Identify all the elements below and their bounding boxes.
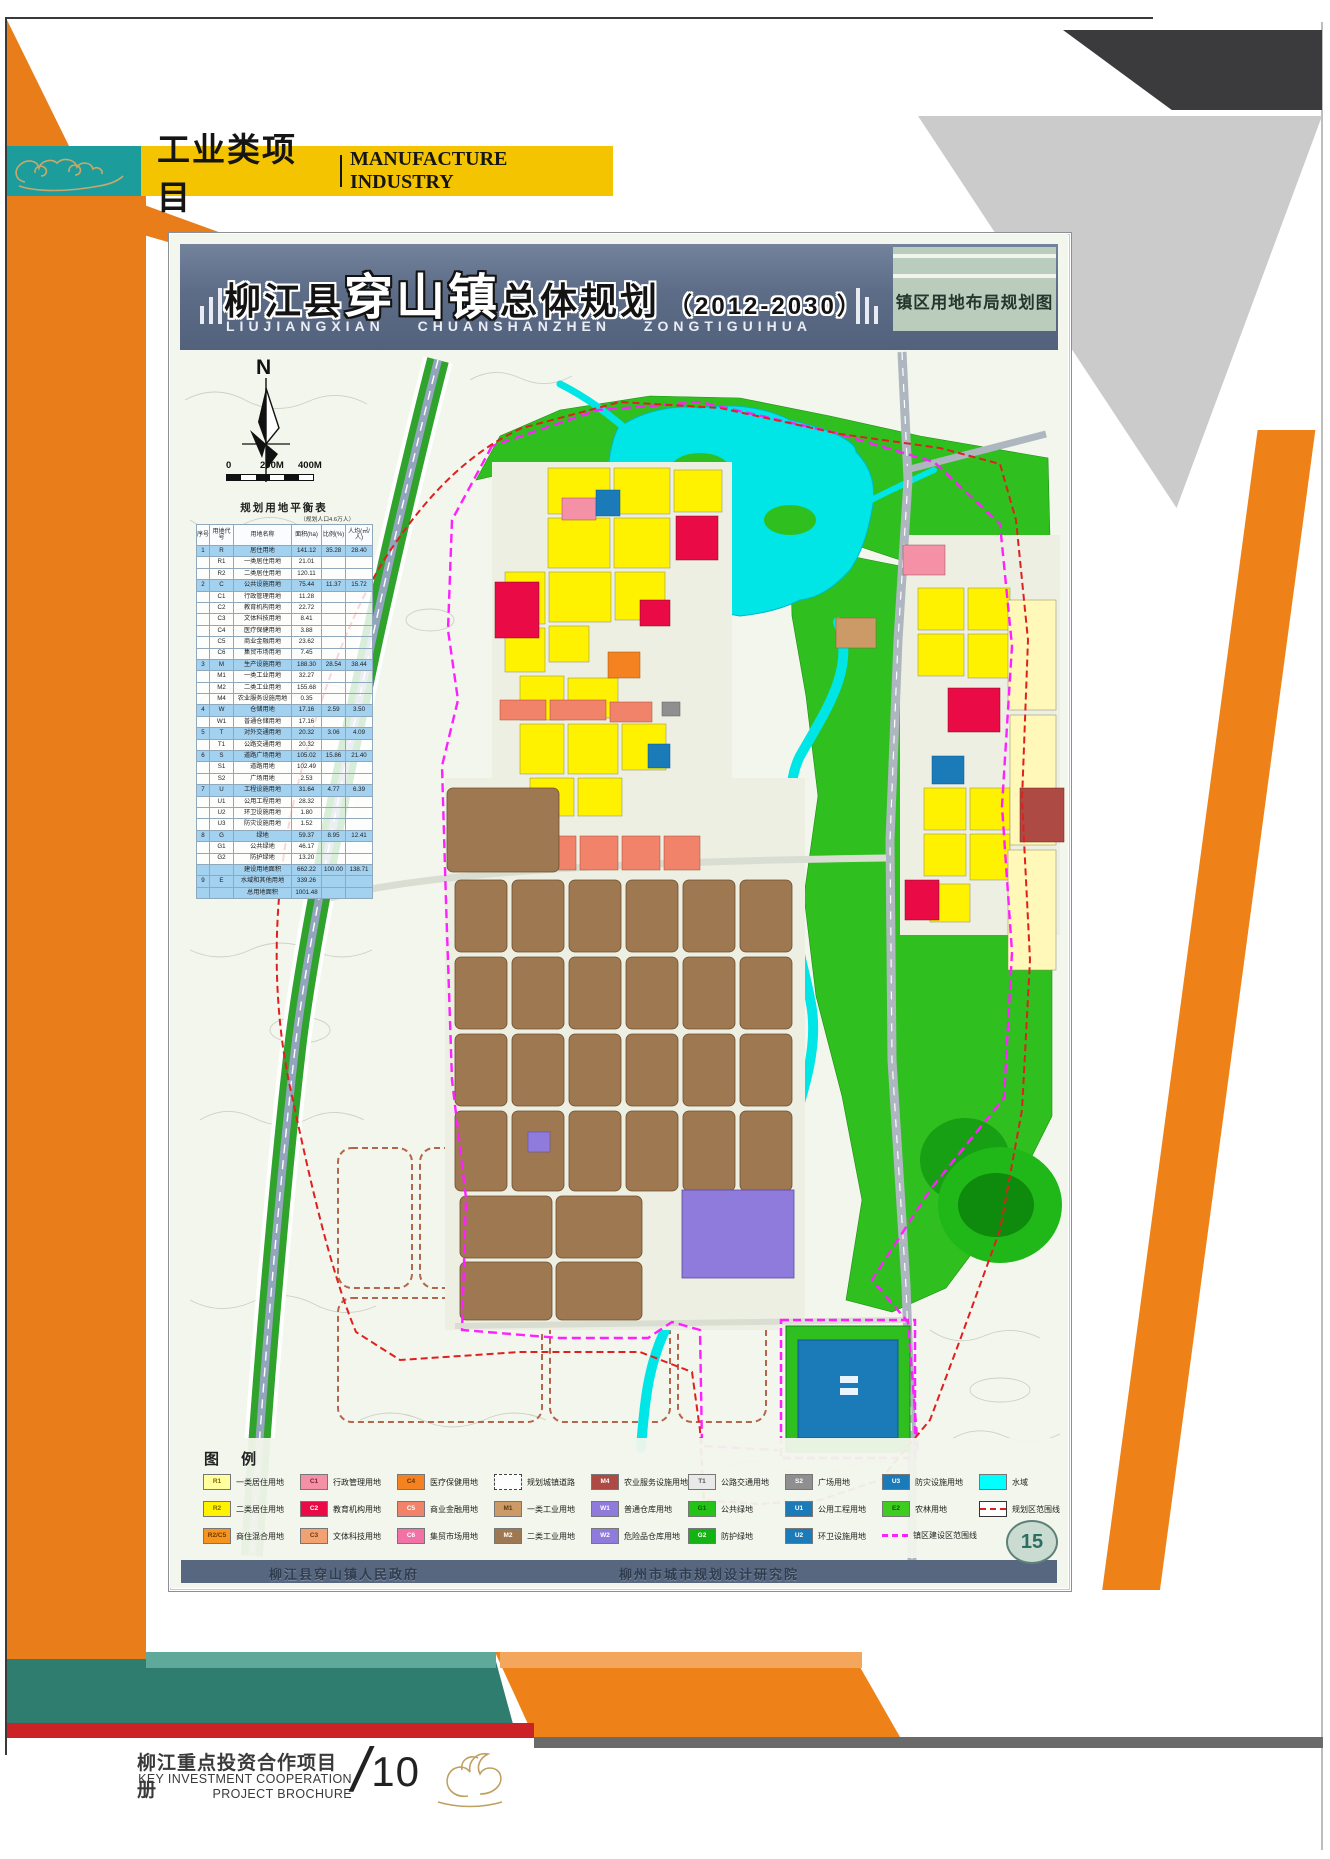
- legend-entry: M2二类工业用地: [494, 1528, 590, 1544]
- brochure-page-number: / 10: [352, 1742, 420, 1802]
- legend-label: 危险品仓库用地: [624, 1531, 680, 1542]
- table-header-cell: 序号: [197, 525, 210, 546]
- table-header-cell: 比例(%): [322, 525, 346, 546]
- table-row: C1行政管理用地11.28: [197, 591, 373, 602]
- legend-entry: W1普通仓库用地: [591, 1501, 687, 1517]
- title-period: （2012-2030）: [668, 286, 864, 321]
- legend-label: 二类工业用地: [527, 1531, 575, 1542]
- legend-entry: M4农业服务设施用地: [591, 1474, 687, 1490]
- north-label: N: [256, 356, 271, 380]
- table-row: 建设用地面积662.22100.00138.71: [197, 864, 373, 875]
- legend-label: 文体科技用地: [333, 1531, 381, 1542]
- page-slash: /: [352, 1742, 369, 1800]
- side-panel-stripe: [893, 254, 1056, 258]
- color-swatch-icon: G2: [688, 1528, 716, 1544]
- balance-table-title: 规划用地平衡表: [214, 500, 354, 515]
- brochure-title-en2: PROJECT BROCHURE: [100, 1787, 352, 1801]
- legend-label: 商住混合用地: [236, 1531, 284, 1542]
- legend-entry: G2防护绿地: [688, 1528, 784, 1544]
- table-row: U3防灾设施用地1.52: [197, 819, 373, 830]
- legend-entry: 规划区范围线: [979, 1501, 1075, 1517]
- legend-label: 环卫设施用地: [818, 1531, 866, 1542]
- brochure-title-en1: KEY INVESTMENT COOPERATION: [100, 1772, 352, 1786]
- color-swatch-icon: U2: [785, 1528, 813, 1544]
- table-row: 4W仓储用地17.162.593.50: [197, 705, 373, 716]
- table-row: M2二类工业用地155.68: [197, 682, 373, 693]
- color-swatch-icon: C5: [397, 1501, 425, 1517]
- side-panel-label: 镇区用地布局规划图: [893, 289, 1056, 313]
- table-row: C3文体科技用地8.41: [197, 614, 373, 625]
- legend-entry: U2环卫设施用地: [785, 1528, 881, 1544]
- table-row: R2二类居住用地120.11: [197, 568, 373, 579]
- legend-label: 教育机构用地: [333, 1504, 381, 1515]
- color-swatch-icon: M1: [494, 1501, 522, 1517]
- balance-table-header: 序号用地代号用地名称面积(ha)比例(%)人均(㎡/人): [197, 525, 373, 546]
- small-warehouse-block: [528, 1132, 550, 1152]
- legend-entry: R2二类居住用地: [203, 1501, 299, 1517]
- table-row: 5T对外交通用地20.323.064.09: [197, 728, 373, 739]
- footer-right-org: 柳州市城市规划设计研究院: [619, 1564, 799, 1583]
- table-row: C6集贸市场用地7.45: [197, 648, 373, 659]
- table-row: T1公路交通用地20.32: [197, 739, 373, 750]
- color-swatch-icon: W1: [591, 1501, 619, 1517]
- color-swatch-icon: R2/C5: [203, 1528, 231, 1544]
- scale-label: 0: [226, 460, 260, 471]
- color-swatch-icon: G1: [688, 1501, 716, 1517]
- title-bars-left-icon: [200, 288, 222, 324]
- color-swatch-icon: C6: [397, 1528, 425, 1544]
- legend-label: 行政管理用地: [333, 1477, 381, 1488]
- scale-label: 400M: [298, 460, 322, 471]
- legend-label: 公共绿地: [721, 1504, 753, 1515]
- table-header-cell: 用地代号: [210, 525, 234, 546]
- banner-divider: [340, 155, 342, 187]
- line-red-swatch-icon: [979, 1501, 1007, 1517]
- legend-label: 公用工程用地: [818, 1504, 866, 1515]
- table-row: G1公共绿地46.17: [197, 842, 373, 853]
- scale-bar-segments: [226, 474, 314, 481]
- title-prefix: 柳江县: [224, 271, 344, 325]
- planning-map: [169, 233, 1069, 1589]
- legend-label: 集贸市场用地: [430, 1531, 478, 1542]
- title-suffix: 总体规划: [500, 271, 660, 325]
- legend-label: 商业金融用地: [430, 1504, 478, 1515]
- legend-entry: U1公用工程用地: [785, 1501, 881, 1517]
- legend-label: 一类工业用地: [527, 1504, 575, 1515]
- table-row: U1公用工程用地28.32: [197, 796, 373, 807]
- legend-label: 农业服务设施用地: [624, 1477, 688, 1488]
- table-row: W1普通仓储用地17.16: [197, 716, 373, 727]
- table-row: M1一类工业用地32.27: [197, 671, 373, 682]
- color-swatch-icon: U1: [785, 1501, 813, 1517]
- legend-entry: R2/C5商住混合用地: [203, 1528, 299, 1544]
- legend-entry: 规划城镇道路: [494, 1474, 590, 1490]
- color-swatch-icon: E2: [882, 1501, 910, 1517]
- legend-entry: C2教育机构用地: [300, 1501, 396, 1517]
- balance-table-note: （规划人口4.6万人）: [300, 514, 354, 523]
- top-rule-line: [5, 17, 1153, 19]
- title-romanized: LIUJIANGXIAN CHUANSHANZHEN ZONGTIGUIHUA: [226, 318, 812, 334]
- map-titlebar: 柳江县 穿山镇 总体规划 （2012-2030） LIUJIANGXIAN CH…: [180, 244, 1058, 350]
- table-row: S1道路用地102.49: [197, 762, 373, 773]
- color-swatch-icon: W2: [591, 1528, 619, 1544]
- table-row: S2广场用地2.53: [197, 773, 373, 784]
- balance-table: 序号用地代号用地名称面积(ha)比例(%)人均(㎡/人) 1R居住用地141.1…: [196, 524, 373, 899]
- legend-entry: C4医疗保健用地: [397, 1474, 493, 1490]
- side-panel-stripe: [893, 274, 1056, 278]
- warehouse-block: [682, 1190, 794, 1278]
- table-row: 9E水域和其他用地339.26: [197, 876, 373, 887]
- table-row: 3M生产设施用地188.3028.5438.44: [197, 659, 373, 670]
- color-swatch-icon: C4: [397, 1474, 425, 1490]
- legend-entry: C3文体科技用地: [300, 1528, 396, 1544]
- legend-entry: C6集贸市场用地: [397, 1528, 493, 1544]
- right-orange-diagonal: [1100, 430, 1322, 1590]
- road-swatch-icon: [494, 1474, 522, 1490]
- utility-compound: [781, 1320, 915, 1458]
- color-swatch-icon: R1: [203, 1474, 231, 1490]
- legend-label: 一类居住用地: [236, 1477, 284, 1488]
- table-row: 6S道路广场用地105.0215.8621.40: [197, 751, 373, 762]
- legend-entry: T1公路交通用地: [688, 1474, 784, 1490]
- table-row: 总用地面积1001.48: [197, 887, 373, 898]
- top-right-dark-band: [1063, 30, 1322, 110]
- legend-entry: M1一类工业用地: [494, 1501, 590, 1517]
- scale-labels: 0200M400M: [226, 460, 322, 471]
- table-row: C2教育机构用地22.72: [197, 602, 373, 613]
- brochure-page: 工业类项目 MANUFACTURE INDUSTRY: [0, 0, 1330, 1859]
- legend-label: 防护绿地: [721, 1531, 753, 1542]
- color-swatch-icon: M2: [494, 1528, 522, 1544]
- water-swatch-icon: [979, 1474, 1007, 1490]
- table-row: C4医疗保健用地3.88: [197, 625, 373, 636]
- legend-entry: 水域: [979, 1474, 1075, 1490]
- color-swatch-icon: C1: [300, 1474, 328, 1490]
- legend-label: 防灾设施用地: [915, 1477, 963, 1488]
- sheet-footer-bar: 柳江县穿山镇人民政府 柳州市城市规划设计研究院: [181, 1560, 1057, 1583]
- line-mag-swatch-icon: [882, 1528, 908, 1542]
- cloud-motif-icon: [7, 146, 141, 196]
- color-swatch-icon: C3: [300, 1528, 328, 1544]
- legend-label: 镇区建设区范围线: [913, 1530, 977, 1541]
- bottom-orange-highlight: [500, 1652, 862, 1668]
- color-swatch-icon: S2: [785, 1474, 813, 1490]
- legend-label: 公路交通用地: [721, 1477, 769, 1488]
- table-row: R1一类居住用地21.01: [197, 557, 373, 568]
- table-row: C5商业金融用地23.62: [197, 637, 373, 648]
- legend-label: 规划区范围线: [1012, 1504, 1060, 1515]
- legend-entry: C1行政管理用地: [300, 1474, 396, 1490]
- bottom-teal-band: [7, 1659, 513, 1724]
- legend-entry: R1一类居住用地: [203, 1474, 299, 1490]
- side-panel: 镇区用地布局规划图: [893, 247, 1056, 331]
- legend-label: 普通仓库用地: [624, 1504, 672, 1515]
- legend-entry: 镇区建设区范围线: [882, 1528, 978, 1542]
- color-swatch-icon: C2: [300, 1501, 328, 1517]
- legend-label: 广场用地: [818, 1477, 850, 1488]
- footer-left-org: 柳江县穿山镇人民政府: [269, 1564, 419, 1583]
- legend-title: 图 例: [204, 1448, 265, 1469]
- section-title-cn: 工业类项目: [157, 123, 330, 219]
- scale-label: 200M: [260, 460, 298, 471]
- table-row: U2环卫设施用地1.80: [197, 807, 373, 818]
- left-orange-bar: [7, 196, 146, 1660]
- balance-table-body: 1R居住用地141.1235.2828.40R1一类居住用地21.01R2二类居…: [197, 546, 373, 899]
- table-row: 1R居住用地141.1235.2828.40: [197, 546, 373, 557]
- scale-bar: 0200M400M: [226, 460, 322, 481]
- title-bars-right-icon: [856, 288, 878, 324]
- color-swatch-icon: U3: [882, 1474, 910, 1490]
- legend-label: 规划城镇道路: [527, 1477, 575, 1488]
- legend-entry: W2危险品仓库用地: [591, 1528, 687, 1544]
- header-teal-block: [7, 146, 141, 196]
- table-header-cell: 人均(㎡/人): [346, 525, 373, 546]
- table-row: 7U工程设施用地31.644.776.39: [197, 785, 373, 796]
- color-swatch-icon: T1: [688, 1474, 716, 1490]
- section-banner: 工业类项目 MANUFACTURE INDUSTRY: [141, 146, 613, 196]
- legend-entry: G1公共绿地: [688, 1501, 784, 1517]
- bottom-gray-bar: [534, 1737, 1323, 1748]
- legend-label: 二类居住用地: [236, 1504, 284, 1515]
- legend-entry: C5商业金融用地: [397, 1501, 493, 1517]
- table-row: M4农业服务设施用地0.35: [197, 694, 373, 705]
- legend-label: 农林用地: [915, 1504, 947, 1515]
- legend: 图 例 R1一类居住用地C1行政管理用地C4医疗保健用地规划城镇道路M4农业服务…: [196, 1448, 1068, 1560]
- footer-cloud-icon: [418, 1736, 518, 1808]
- section-title-en: MANUFACTURE INDUSTRY: [350, 148, 613, 194]
- page-number-badge: 15: [1006, 1520, 1058, 1564]
- legend-label: 水域: [1012, 1477, 1028, 1488]
- table-header-cell: 面积(ha): [292, 525, 322, 546]
- bottom-teal-highlight: [146, 1652, 496, 1668]
- legend-label: 医疗保健用地: [430, 1477, 478, 1488]
- table-row: 8G绿地59.378.9512.41: [197, 830, 373, 841]
- legend-entry: E2农林用地: [882, 1501, 978, 1517]
- table-row: 2C公共设施用地75.4411.3715.72: [197, 580, 373, 591]
- top-left-orange-triangle: [7, 20, 69, 146]
- right-rule-line: [1321, 22, 1323, 1850]
- color-swatch-icon: R2: [203, 1501, 231, 1517]
- table-header-cell: 用地名称: [234, 525, 292, 546]
- page-ten: 10: [371, 1742, 420, 1802]
- legend-entry: S2广场用地: [785, 1474, 881, 1490]
- color-swatch-icon: M4: [591, 1474, 619, 1490]
- table-row: G2防护绿地13.20: [197, 853, 373, 864]
- legend-entry: U3防灾设施用地: [882, 1474, 978, 1490]
